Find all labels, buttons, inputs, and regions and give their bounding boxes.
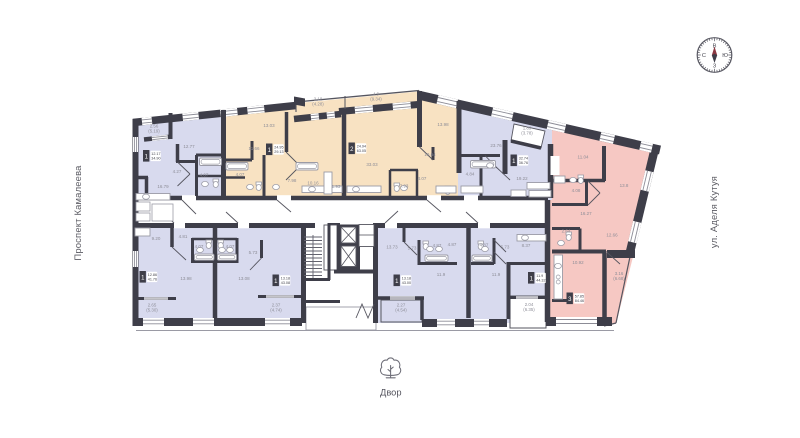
svg-text:4.87: 4.87 [448, 242, 457, 247]
svg-text:7.93: 7.93 [400, 184, 409, 189]
svg-text:43.08: 43.08 [281, 281, 290, 285]
svg-text:63.05: 63.05 [357, 149, 366, 153]
svg-text:19.22: 19.22 [516, 176, 528, 181]
svg-text:1.93: 1.93 [332, 184, 341, 189]
svg-text:24.95: 24.95 [274, 145, 283, 149]
svg-text:12.17: 12.17 [151, 152, 160, 156]
svg-text:33.03: 33.03 [366, 162, 378, 167]
svg-text:4.07: 4.07 [236, 172, 245, 177]
svg-text:44.32: 44.32 [536, 279, 545, 283]
svg-text:16.27: 16.27 [580, 211, 592, 216]
svg-text:(6.68): (6.68) [613, 276, 625, 281]
svg-text:5.73: 5.73 [501, 245, 510, 250]
svg-text:32.74: 32.74 [519, 156, 528, 160]
svg-text:9.20: 9.20 [152, 236, 161, 241]
svg-text:4.07: 4.07 [200, 173, 209, 178]
svg-text:(4.74): (4.74) [270, 308, 282, 313]
svg-text:10.16: 10.16 [307, 181, 319, 186]
svg-text:13.98: 13.98 [437, 122, 449, 127]
svg-text:(3.78): (3.78) [521, 131, 533, 136]
svg-text:4.07: 4.07 [195, 244, 204, 249]
svg-text:Двор: Двор [380, 388, 401, 398]
svg-text:(9.34): (9.34) [370, 97, 382, 102]
svg-text:23.76: 23.76 [490, 143, 502, 148]
svg-text:12.66: 12.66 [606, 233, 618, 238]
svg-text:13.8: 13.8 [620, 183, 629, 188]
svg-text:36.76: 36.76 [519, 161, 528, 165]
svg-text:(5.30): (5.30) [146, 308, 158, 313]
svg-text:(6.35): (6.35) [523, 307, 535, 312]
svg-text:13.73: 13.73 [386, 245, 398, 250]
svg-text:13.03: 13.03 [263, 123, 275, 128]
svg-text:Ю: Ю [722, 53, 728, 59]
svg-text:4.08: 4.08 [572, 188, 581, 193]
svg-text:84.46: 84.46 [575, 299, 584, 303]
svg-text:4.87: 4.87 [480, 243, 489, 248]
svg-text:С: С [702, 53, 706, 59]
svg-text:ул. Аделя Кутуя: ул. Аделя Кутуя [708, 176, 719, 248]
svg-text:34.90: 34.90 [151, 157, 160, 161]
svg-text:43.00: 43.00 [402, 281, 411, 285]
svg-text:4.07: 4.07 [226, 244, 235, 249]
svg-text:7.98: 7.98 [288, 178, 297, 183]
svg-text:12.86: 12.86 [148, 273, 157, 277]
svg-text:4.81: 4.81 [179, 234, 188, 239]
svg-text:16.79: 16.79 [157, 184, 169, 189]
svg-text:2.64: 2.64 [562, 229, 571, 234]
svg-text:5.73: 5.73 [249, 250, 258, 255]
svg-text:11.04: 11.04 [578, 155, 589, 160]
svg-text:4.27: 4.27 [173, 169, 182, 174]
svg-text:(4.28): (4.28) [312, 102, 324, 107]
svg-text:Проспект Камалеева: Проспект Камалеева [72, 165, 83, 261]
svg-text:11.9: 11.9 [536, 274, 543, 278]
svg-text:10.92: 10.92 [572, 260, 584, 265]
svg-text:(4.54): (4.54) [395, 308, 407, 313]
svg-text:13.18: 13.18 [402, 276, 411, 280]
svg-text:4.84: 4.84 [466, 172, 475, 177]
svg-text:12.77: 12.77 [183, 144, 195, 149]
svg-text:13.98: 13.98 [180, 276, 192, 281]
svg-text:11.66: 11.66 [249, 146, 260, 151]
svg-text:13.18: 13.18 [281, 276, 290, 280]
svg-text:19.64: 19.64 [424, 152, 436, 157]
svg-text:8.37: 8.37 [522, 243, 531, 248]
svg-text:24.94: 24.94 [357, 144, 366, 148]
svg-text:29.13: 29.13 [274, 150, 283, 154]
svg-text:57.85: 57.85 [575, 294, 584, 298]
svg-text:11.9: 11.9 [437, 272, 446, 277]
svg-text:13.08: 13.08 [238, 276, 250, 281]
svg-text:41.76: 41.76 [148, 278, 157, 282]
svg-text:4.07: 4.07 [418, 176, 427, 181]
svg-text:11.9: 11.9 [492, 272, 501, 277]
svg-text:(5.19): (5.19) [148, 129, 160, 134]
svg-text:5.73: 5.73 [408, 246, 417, 251]
svg-text:З: З [713, 64, 717, 70]
svg-text:4.87: 4.87 [433, 243, 442, 248]
